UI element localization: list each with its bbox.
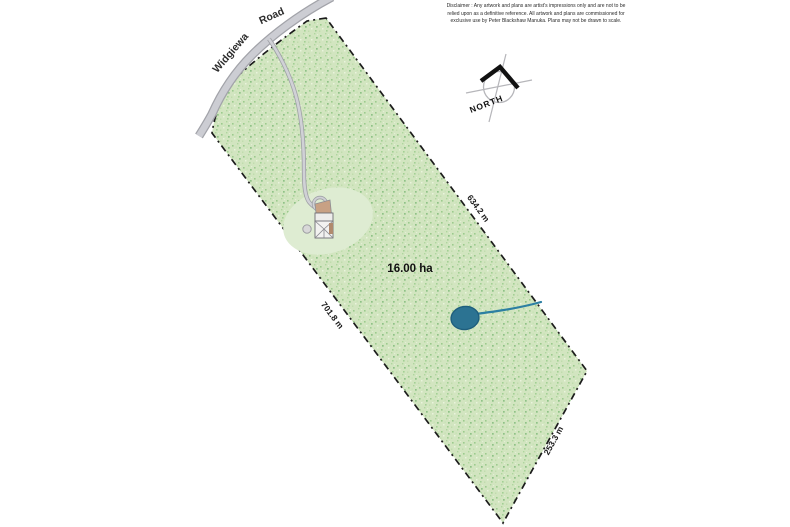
- north-arrowhead-icon: [481, 67, 518, 88]
- disclaimer-line-1: Disclaimer : Any artwork and plans are a…: [446, 3, 626, 11]
- parcel-area-label: 16.00 ha: [387, 263, 433, 275]
- disclaimer-text: Disclaimer : Any artwork and plans are a…: [446, 3, 626, 26]
- disclaimer-line-2: relied upon as a definitive reference. A…: [446, 11, 626, 19]
- water-tank: [303, 225, 311, 233]
- north-compass: NORTH: [466, 54, 532, 122]
- site-plan-canvas: NORTH Widgiewa Road 634.2 m 701.8 m 253.…: [0, 0, 790, 527]
- house-roof-shade: [329, 223, 333, 234]
- disclaimer-line-3: exclusive use by Peter Blackshaw Manuka.…: [446, 18, 626, 26]
- site-plan-page: NORTH Widgiewa Road 634.2 m 701.8 m 253.…: [0, 0, 790, 527]
